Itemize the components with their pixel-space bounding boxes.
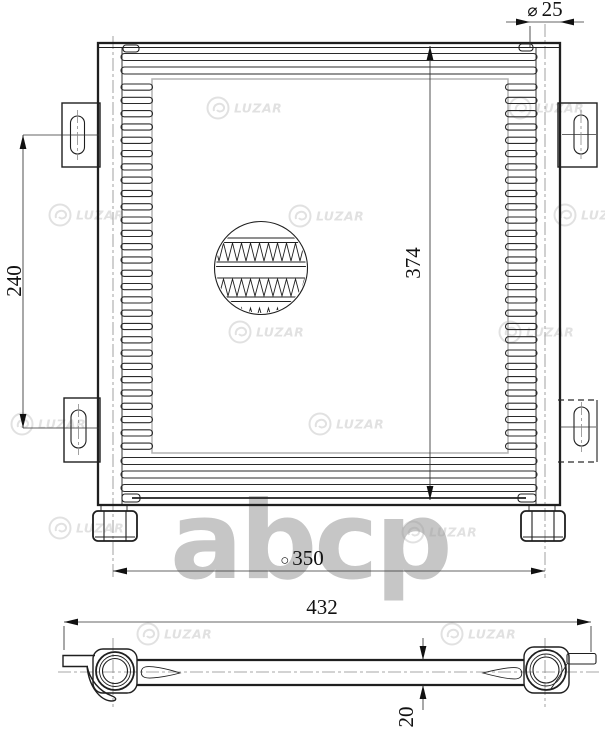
fin-bar xyxy=(506,430,538,436)
pipe-outline xyxy=(567,654,596,665)
tab-outline xyxy=(63,656,95,667)
fin-bar xyxy=(506,230,538,236)
luzar-watermark: LUZAR xyxy=(230,322,305,343)
dim-core-height-label: 374 xyxy=(401,247,425,279)
luzar-brand-text: LUZAR xyxy=(234,101,282,116)
fin-bar xyxy=(506,137,538,143)
dim-pipe-diameter: ⌀25 xyxy=(506,0,584,47)
dim-pipe-diameter-label: ⌀25 xyxy=(527,0,562,21)
fin-bar xyxy=(121,403,153,409)
luzar-logo-icon xyxy=(208,98,229,119)
left-fitting xyxy=(93,649,137,693)
dim-value: 25 xyxy=(542,0,563,21)
luzar-watermark: LUZAR xyxy=(555,205,605,226)
fin-bar xyxy=(121,377,153,383)
fin-bar xyxy=(506,350,538,356)
luzar-logo-icon xyxy=(138,624,159,645)
bracket-top-left xyxy=(23,103,100,167)
dim-core-depth: 20 xyxy=(394,638,426,728)
luzar-logo-swirl-icon xyxy=(448,630,458,638)
diameter-symbol: ○ xyxy=(280,553,289,569)
dim-overall-width-label: 432 xyxy=(306,595,338,619)
left-mount-tab xyxy=(63,656,116,702)
fin-bar xyxy=(121,124,153,130)
arrowhead xyxy=(531,568,545,575)
fin-bar xyxy=(506,177,538,183)
fin-bar xyxy=(121,350,153,356)
fin-bar xyxy=(121,244,153,250)
luzar-brand-text: LUZAR xyxy=(164,627,212,642)
diameter-symbol: ⌀ xyxy=(527,1,537,20)
header-tubes xyxy=(121,54,537,492)
dim-mount-spacing-label: 240 xyxy=(2,265,26,297)
dim-core-depth-label: 20 xyxy=(394,707,418,728)
fin-bar xyxy=(121,97,153,103)
fin-bar xyxy=(121,270,153,276)
fitting-ring xyxy=(96,652,134,690)
luzar-brand-text: LUZAR xyxy=(316,209,364,224)
luzar-logo-icon xyxy=(510,98,531,119)
fin-bar xyxy=(121,204,153,210)
fitting-ring xyxy=(526,650,566,690)
fin-bar xyxy=(506,297,538,303)
fin-bar xyxy=(121,284,153,290)
fitting-bore xyxy=(103,659,128,684)
fitting-ring xyxy=(100,656,131,687)
fin-bar xyxy=(121,257,153,263)
luzar-logo-swirl-icon xyxy=(144,630,154,638)
fitting-bore xyxy=(533,657,559,683)
fin-bar xyxy=(506,84,538,90)
luzar-brand-text: LUZAR xyxy=(468,627,516,642)
fin-bar xyxy=(121,390,153,396)
fin-bar xyxy=(506,151,538,157)
arrowhead xyxy=(20,135,27,149)
arrowhead xyxy=(420,646,427,660)
fin-bar xyxy=(506,217,538,223)
fin-bar xyxy=(121,151,153,157)
luzar-logo-swirl-icon xyxy=(56,524,66,532)
fin-bar xyxy=(121,177,153,183)
luzar-watermark: LUZAR xyxy=(290,206,365,227)
arrowhead xyxy=(113,568,127,575)
luzar-logo-swirl-icon xyxy=(316,420,326,428)
frame xyxy=(98,43,560,505)
luzar-brand-text: LUZAR xyxy=(38,417,86,432)
dim-value: 350 xyxy=(292,546,324,570)
fin-bar xyxy=(506,377,538,383)
fin-bar xyxy=(506,257,538,263)
fin-bar xyxy=(121,443,153,449)
luzar-logo-icon xyxy=(50,518,71,539)
bottom-view xyxy=(58,638,600,707)
tube-end-hook-left xyxy=(123,45,139,52)
luzar-watermark: LUZAR xyxy=(442,624,517,645)
bracket-bottom-right xyxy=(558,400,597,462)
luzar-logo-swirl-icon xyxy=(56,211,66,219)
luzar-brand-text: LUZAR xyxy=(76,208,124,223)
fin-bar xyxy=(121,337,153,343)
tube xyxy=(121,458,537,465)
fin-bar xyxy=(506,204,538,210)
luzar-logo-swirl-icon xyxy=(296,212,306,220)
detail-boundary xyxy=(215,222,308,315)
dim-mount-spacing: 240 xyxy=(2,135,26,428)
fin-bar xyxy=(121,111,153,117)
fin-bar xyxy=(506,417,538,423)
fin-bar xyxy=(506,443,538,449)
luzar-brand-text: LUZAR xyxy=(429,525,477,540)
fin-bar xyxy=(506,124,538,130)
arrowhead xyxy=(577,619,591,626)
technical-drawing-page: abcp LUZARLUZARLUZARLUZARLUZARLUZARLUZAR… xyxy=(0,0,605,743)
fin-bar xyxy=(506,310,538,316)
fin-bar xyxy=(121,417,153,423)
luzar-brand-text: LUZAR xyxy=(256,325,304,340)
tube xyxy=(121,54,537,61)
luzar-brand-text: LUZAR xyxy=(76,521,124,536)
luzar-logo-icon xyxy=(290,206,311,227)
luzar-logo-icon xyxy=(500,322,521,343)
fin-bar xyxy=(121,310,153,316)
fin-bar xyxy=(506,244,538,250)
luzar-logo-icon xyxy=(230,322,251,343)
luzar-brand-text: LUZAR xyxy=(336,417,384,432)
tube xyxy=(121,67,537,74)
fin-bar xyxy=(121,430,153,436)
core-fins xyxy=(121,84,537,449)
fin-bar xyxy=(506,403,538,409)
hex-nut xyxy=(521,511,565,541)
zigzag-fin xyxy=(210,308,318,324)
fin-bar xyxy=(121,297,153,303)
dim-core-height: 374 xyxy=(401,46,433,500)
fin-bar xyxy=(121,164,153,170)
fin-bar xyxy=(121,323,153,329)
luzar-watermark: LUZAR xyxy=(208,98,283,119)
slot-right xyxy=(483,668,522,679)
zigzag-fin xyxy=(210,279,318,296)
fin-bar xyxy=(121,190,153,196)
fin-bar xyxy=(121,230,153,236)
fin-bar xyxy=(506,270,538,276)
fitting-ring xyxy=(530,654,562,686)
fin-bar xyxy=(506,390,538,396)
luzar-brand-text: LUZAR xyxy=(581,208,605,223)
arrowhead xyxy=(64,619,78,626)
luzar-logo-icon xyxy=(50,205,71,226)
luzar-logo-icon xyxy=(442,624,463,645)
right-fitting xyxy=(524,647,569,693)
fin-bar xyxy=(506,190,538,196)
fin-bar xyxy=(121,84,153,90)
fin-detail-circle xyxy=(210,222,318,325)
fin-bar xyxy=(506,164,538,170)
drawing-canvas: abcp LUZARLUZARLUZARLUZARLUZARLUZARLUZAR… xyxy=(0,0,605,743)
fin-bar xyxy=(121,363,153,369)
outlet-nut-right xyxy=(521,505,565,541)
core-rect xyxy=(152,79,508,453)
luzar-watermark: LUZAR xyxy=(138,624,213,645)
luzar-logo-icon xyxy=(555,205,576,226)
luzar-logo-swirl-icon xyxy=(561,211,571,219)
tube xyxy=(121,471,537,478)
luzar-logo-swirl-icon xyxy=(236,328,246,336)
detail-fin-pattern xyxy=(210,238,318,324)
luzar-watermark: LUZAR xyxy=(310,414,385,435)
luzar-watermark: LUZAR xyxy=(510,98,585,119)
fin-bar xyxy=(506,284,538,290)
arrowhead xyxy=(420,685,427,699)
fin-bar xyxy=(506,363,538,369)
fin-bar xyxy=(121,137,153,143)
luzar-logo-icon xyxy=(310,414,331,435)
luzar-logo-swirl-icon xyxy=(214,104,224,112)
fin-bar xyxy=(121,217,153,223)
